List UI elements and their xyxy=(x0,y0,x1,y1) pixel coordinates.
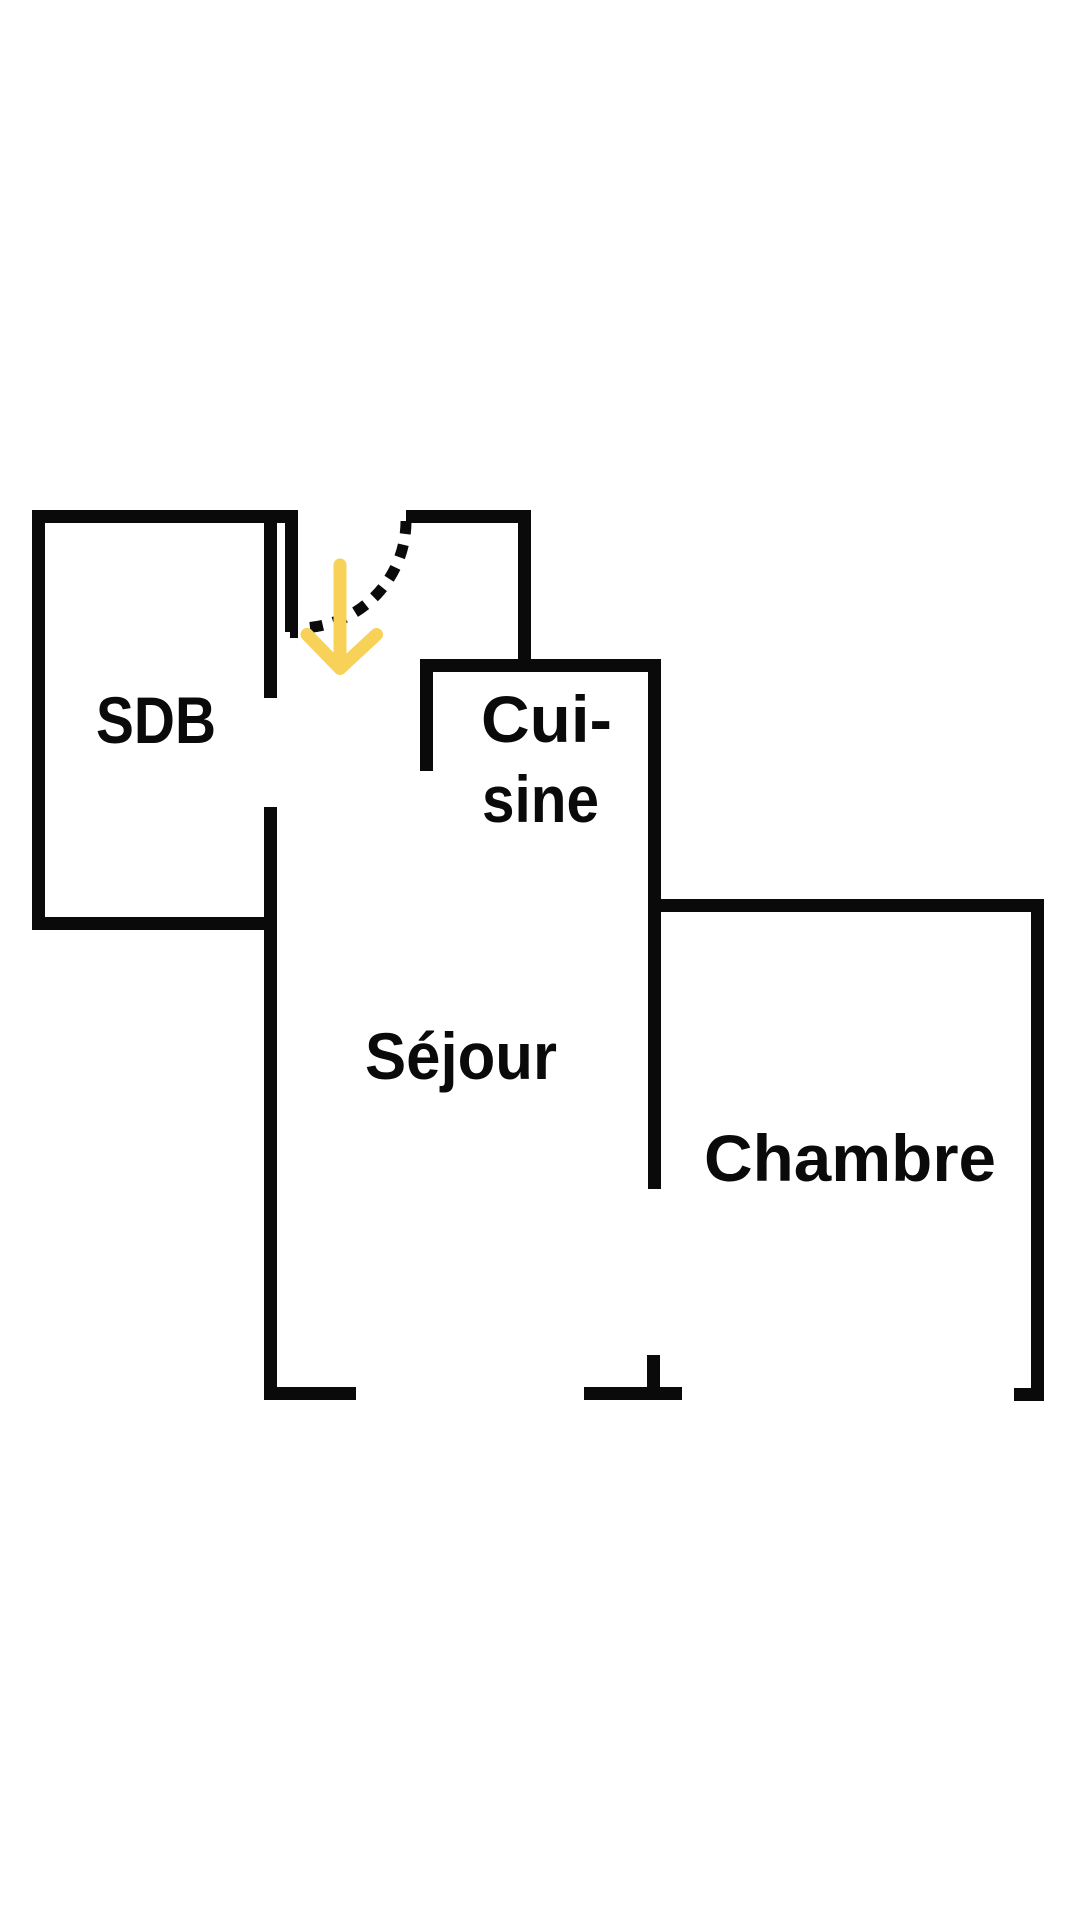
svg-text:SDB: SDB xyxy=(96,683,216,757)
svg-text:Séjour: Séjour xyxy=(365,1019,557,1093)
svg-text:sine: sine xyxy=(482,762,599,836)
svg-text:Cui-: Cui- xyxy=(481,682,612,756)
svg-text:Chambre: Chambre xyxy=(704,1121,996,1195)
